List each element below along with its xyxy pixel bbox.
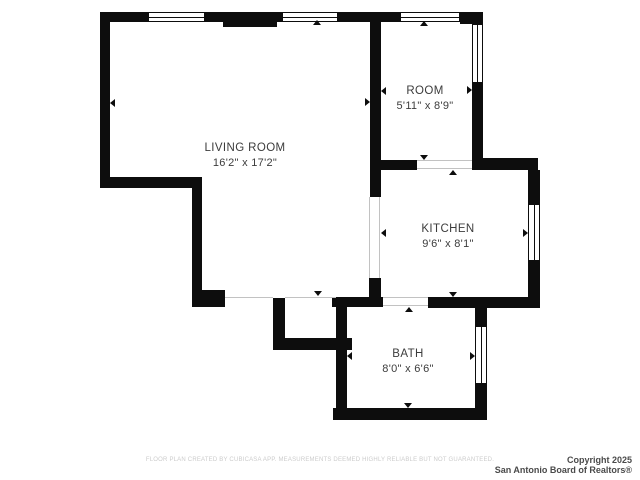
window: [282, 12, 338, 22]
dimension-arrow-icon: [449, 170, 457, 175]
door-opening: [369, 197, 370, 278]
dimension-arrow-icon: [110, 99, 115, 107]
wall: [192, 290, 225, 307]
dimension-arrow-icon: [470, 352, 475, 360]
room-dimensions: 5'11" x 8'9": [365, 99, 485, 114]
room-dimensions: 16'2" x 17'2": [165, 156, 325, 171]
door-opening: [417, 168, 472, 169]
window: [148, 12, 205, 22]
room-label-room: ROOM 5'11" x 8'9": [365, 84, 485, 114]
door-opening: [383, 305, 428, 306]
wall: [475, 307, 487, 327]
dimension-arrow-icon: [449, 292, 457, 297]
wall: [192, 177, 202, 307]
door-opening: [285, 297, 336, 298]
floor-plan: LIVING ROOM 16'2" x 17'2" ROOM 5'11" x 8…: [0, 0, 640, 480]
wall: [333, 408, 487, 420]
wall: [336, 298, 347, 420]
dimension-arrow-icon: [404, 403, 412, 408]
wall: [472, 158, 538, 170]
dimension-arrow-icon: [420, 155, 428, 160]
wall: [369, 278, 381, 307]
wall: [100, 12, 110, 188]
dimension-arrow-icon: [314, 291, 322, 296]
wall: [528, 170, 540, 205]
dimension-arrow-icon: [313, 20, 321, 25]
room-dimensions: 8'0" x 6'6": [348, 362, 468, 377]
room-name: ROOM: [365, 84, 485, 99]
dimension-arrow-icon: [523, 229, 528, 237]
wall: [100, 177, 202, 188]
dimension-arrow-icon: [420, 21, 428, 26]
copyright-text: Copyright 2025 San Antonio Board of Real…: [495, 455, 632, 475]
copyright-line1: Copyright 2025: [495, 455, 632, 465]
wall: [370, 160, 417, 170]
door-opening: [383, 297, 428, 298]
room-name: BATH: [348, 347, 468, 362]
copyright-line2: San Antonio Board of Realtors®: [495, 465, 632, 475]
wall: [460, 12, 483, 24]
room-dimensions: 9'6" x 8'1": [388, 237, 508, 252]
wall: [223, 12, 277, 27]
window: [528, 204, 540, 261]
room-name: KITCHEN: [388, 222, 508, 237]
disclaimer-text: FLOOR PLAN CREATED BY CUBICASA APP. MEAS…: [100, 457, 540, 463]
room-name: LIVING ROOM: [165, 141, 325, 156]
wall: [338, 12, 400, 22]
window: [472, 24, 483, 83]
room-label-kitchen: KITCHEN 9'6" x 8'1": [388, 222, 508, 252]
door-opening: [417, 160, 472, 161]
door-opening: [379, 197, 380, 278]
door-opening: [225, 297, 273, 298]
dimension-arrow-icon: [405, 307, 413, 312]
floor-plan-page: LIVING ROOM 16'2" x 17'2" ROOM 5'11" x 8…: [0, 0, 640, 480]
room-label-living-room: LIVING ROOM 16'2" x 17'2": [165, 141, 325, 171]
room-label-bath: BATH 8'0" x 6'6": [348, 347, 468, 377]
dimension-arrow-icon: [381, 229, 386, 237]
window: [400, 12, 460, 22]
window: [475, 326, 487, 384]
